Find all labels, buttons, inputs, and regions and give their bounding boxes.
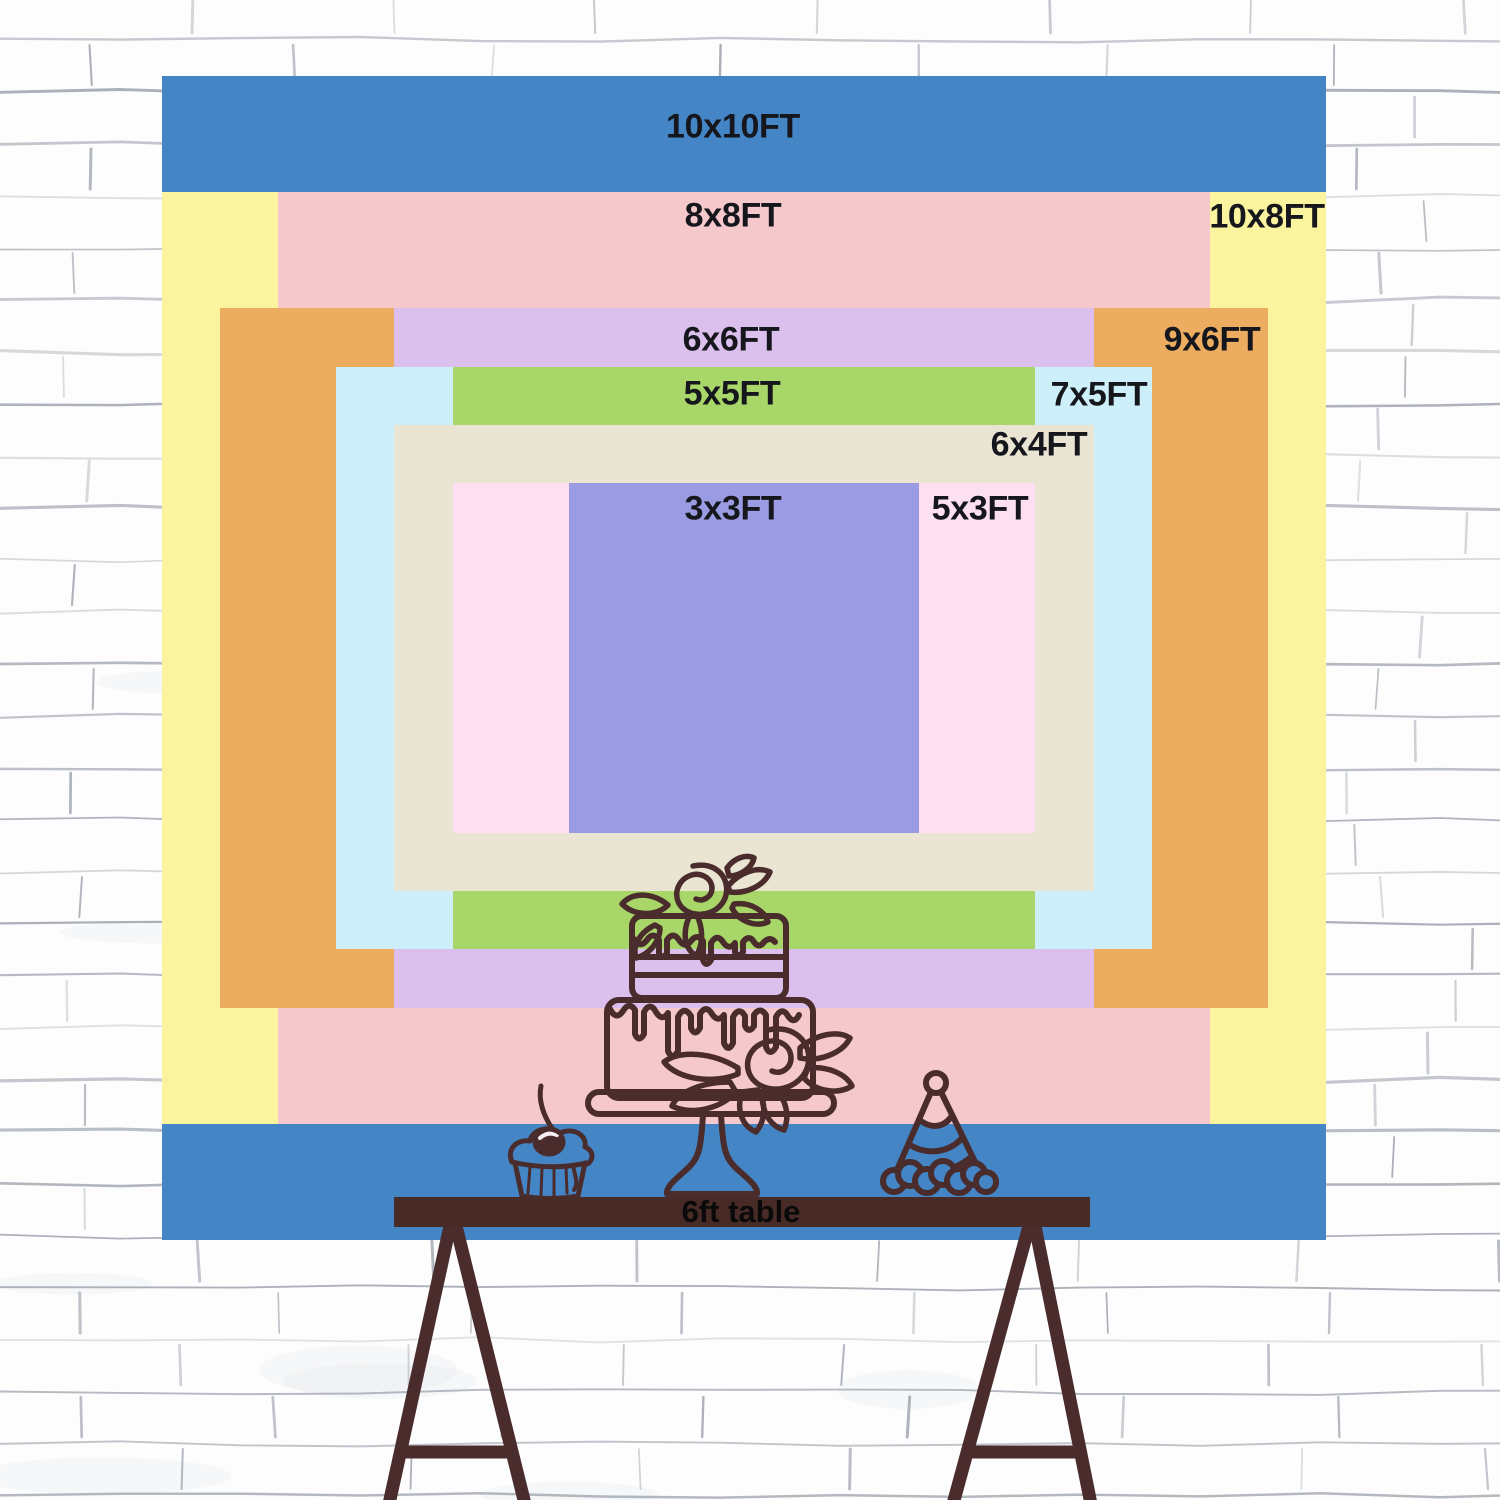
party-hat-trim [883, 1161, 996, 1193]
table-size-label: 6ft table [682, 1194, 801, 1230]
backdrop-size-chart: 10x10FT 8x8FT 10x8FT 6x6FT 9x6FT 5x5FT 7… [0, 0, 1500, 1500]
cake-illustration [588, 856, 852, 1194]
line-art-overlay [0, 0, 1500, 1500]
party-hat-icon [883, 1073, 996, 1193]
cupcake-icon [510, 1086, 592, 1199]
table-illustration [389, 1197, 1091, 1500]
